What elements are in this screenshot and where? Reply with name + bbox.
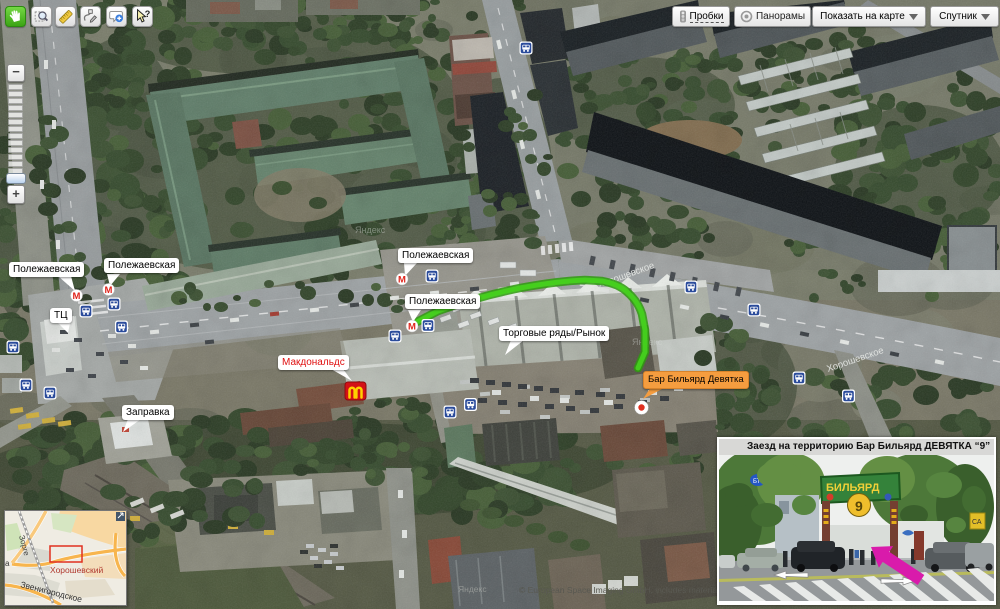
svg-text:9: 9: [855, 498, 863, 514]
svg-text:а: а: [5, 559, 10, 568]
svg-text:М: М: [408, 322, 416, 333]
svg-text:?: ?: [145, 9, 151, 19]
svg-text:СА: СА: [972, 519, 982, 526]
svg-text:БИЛЬЯРД: БИЛЬЯРД: [826, 482, 880, 494]
svg-text:М: М: [73, 291, 81, 302]
svg-text:М: М: [105, 285, 113, 296]
svg-text:Хорошевский: Хорошевский: [50, 565, 103, 575]
svg-text:М: М: [398, 275, 406, 286]
